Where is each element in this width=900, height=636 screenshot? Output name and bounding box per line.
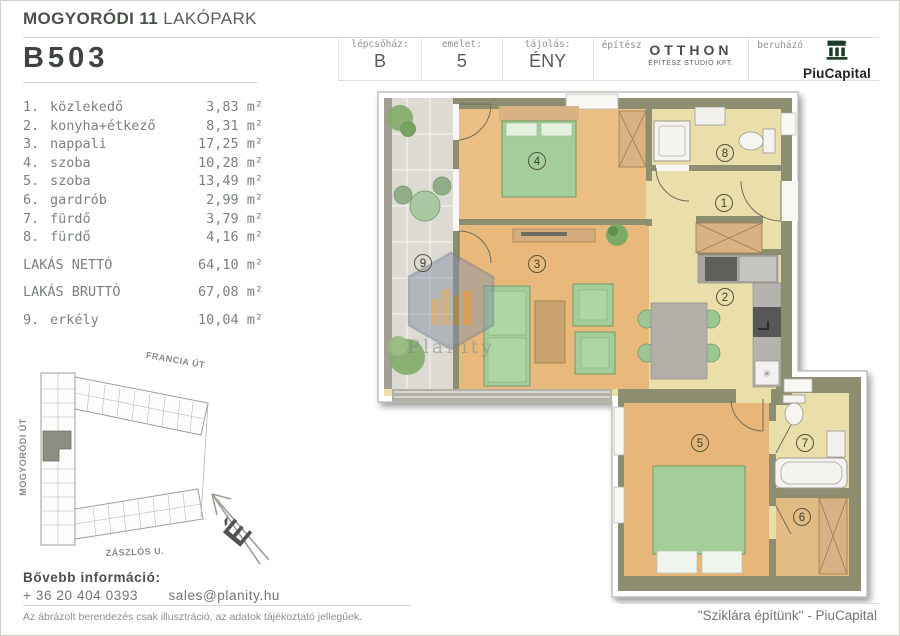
floor-value: 5 <box>430 51 494 72</box>
gross-area-value: 67,08 m² <box>198 283 263 302</box>
room-area: 13,49 m² <box>198 172 263 191</box>
room-number: 3. <box>23 135 50 154</box>
footer-right-divider <box>619 603 879 604</box>
staircase-value: B <box>347 51 413 72</box>
info-developer: beruházó PiuCapital <box>748 38 879 80</box>
unit-info-bar: lépcsőház: B emelet: 5 tájolás: ÉNY épít… <box>338 38 879 81</box>
room-list-item: 5.szoba13,49 m² <box>23 172 263 191</box>
room-name: közlekedő <box>50 98 206 117</box>
more-info-label: Bővebb információ: <box>23 570 161 585</box>
project-title: MOGYORÓDI 11 LAKÓPARK <box>23 9 257 29</box>
floor-label: emelet: <box>430 39 494 50</box>
room-number: 2. <box>23 117 50 136</box>
room-number: 9. <box>23 311 50 330</box>
room-number: 1. <box>23 98 50 117</box>
developer-logo: PiuCapital <box>803 39 871 81</box>
room-area: 3,83 m² <box>206 98 263 117</box>
room-list-item: 8.fürdő4,16 m² <box>23 228 263 247</box>
floorplan-sheet: MOGYORÓDI 11 LAKÓPARK B503 lépcsőház: B … <box>0 0 900 636</box>
room-name: fürdő <box>50 228 206 247</box>
email-address: sales@planity.hu <box>168 588 280 603</box>
room-name: konyha+étkező <box>50 117 206 136</box>
room-area: 4,16 m² <box>206 228 263 247</box>
room-number: 8. <box>23 228 50 247</box>
info-orientation: tájolás: ÉNY <box>502 38 593 80</box>
net-area-row: LAKÁS NETTÓ64,10 m² <box>23 256 263 275</box>
orientation-value: ÉNY <box>511 51 585 72</box>
room-list: 1.közlekedő3,83 m² 2.konyha+étkező8,31 m… <box>23 98 263 330</box>
room-name: nappali <box>50 135 198 154</box>
project-title-light: LAKÓPARK <box>163 9 257 28</box>
company-slogan: "Sziklára építünk" - PiuCapital <box>698 608 877 623</box>
architect-name: OTTHON <box>642 42 741 58</box>
room-name: erkély <box>50 311 198 330</box>
room-label-1: 1 <box>721 198 727 210</box>
room-area: 2,99 m² <box>206 191 263 210</box>
room-label-5: 5 <box>697 438 703 450</box>
piucapital-column-icon <box>824 39 850 63</box>
watermark-text: Planity <box>407 336 495 358</box>
room-list-item: 7.fürdő3,79 m² <box>23 210 263 229</box>
room-area: 17,25 m² <box>198 135 263 154</box>
gross-area-label: LAKÁS BRUTTÓ <box>23 283 198 302</box>
staircase-label: lépcsőház: <box>347 39 413 50</box>
room-label-7: 7 <box>802 438 808 450</box>
unit-id-divider <box>23 82 258 83</box>
architect-logo: OTTHON ÉPÍTÉSZ STÚDIÓ KFT. <box>642 39 741 67</box>
room-area: 10,28 m² <box>198 154 263 173</box>
developer-label: beruházó <box>757 40 803 51</box>
room-list-item: 4.szoba10,28 m² <box>23 154 263 173</box>
room-list-item: 3.nappali17,25 m² <box>23 135 263 154</box>
room-number: 4. <box>23 154 50 173</box>
room-label-9: 9 <box>420 258 426 270</box>
gardrob-closet <box>819 498 847 574</box>
room-name: szoba <box>50 154 198 173</box>
phone-number: + 36 20 404 0393 <box>23 588 138 603</box>
net-area-label: LAKÁS NETTÓ <box>23 256 198 275</box>
room-number: 7. <box>23 210 50 229</box>
gross-area-row: LAKÁS BRUTTÓ67,08 m² <box>23 283 263 302</box>
room-area: 8,31 m² <box>206 117 263 136</box>
south-window-band <box>392 389 612 402</box>
balcony-row: 9.erkély10,04 m² <box>23 311 263 330</box>
disclaimer-text: Az ábrázolt berendezés csak illusztráció… <box>23 611 362 623</box>
net-area-value: 64,10 m² <box>198 256 263 275</box>
floor-plan: ✳ <box>369 85 891 603</box>
room-list-item: 6.gardrób2,99 m² <box>23 191 263 210</box>
room-list-item: 1.közlekedő3,83 m² <box>23 98 263 117</box>
street-label-left: MOGYORÓDI ÚT <box>17 418 28 496</box>
room-label-2: 2 <box>722 292 728 304</box>
room-name: gardrób <box>50 191 206 210</box>
street-label-top: FRANCIA ÚT <box>145 349 206 370</box>
unit-id: B503 <box>23 42 108 75</box>
developer-name: PiuCapital <box>803 66 871 81</box>
contact-row: + 36 20 404 0393 sales@planity.hu <box>23 588 280 603</box>
info-staircase: lépcsőház: B <box>338 38 421 80</box>
room-label-3: 3 <box>534 259 540 271</box>
room-number: 6. <box>23 191 50 210</box>
hall-wardrobe <box>696 223 762 253</box>
room-area: 10,04 m² <box>198 311 263 330</box>
orientation-label: tájolás: <box>511 39 585 50</box>
room-label-8: 8 <box>722 148 728 160</box>
room-number: 5. <box>23 172 50 191</box>
room-area: 3,79 m² <box>206 210 263 229</box>
info-floor: emelet: 5 <box>421 38 502 80</box>
architect-subtitle: ÉPÍTÉSZ STÚDIÓ KFT. <box>642 60 741 67</box>
room-name: szoba <box>50 172 198 191</box>
room-name: fürdő <box>50 210 206 229</box>
room-list-item: 2.konyha+étkező8,31 m² <box>23 117 263 136</box>
compass-letter: É <box>216 512 258 553</box>
project-title-bold: MOGYORÓDI 11 <box>23 9 158 28</box>
compass-north-icon: É <box>194 478 286 573</box>
street-label-bottom: ZÁSZLÓS U. <box>105 545 164 558</box>
footer-left-divider <box>23 605 411 606</box>
room-label-4: 4 <box>534 156 541 168</box>
architect-label: építész <box>602 40 642 51</box>
info-architect: építész OTTHON ÉPÍTÉSZ STÚDIÓ KFT. <box>593 38 749 80</box>
svg-text:✳: ✳ <box>763 369 771 380</box>
room-label-6: 6 <box>799 512 805 524</box>
